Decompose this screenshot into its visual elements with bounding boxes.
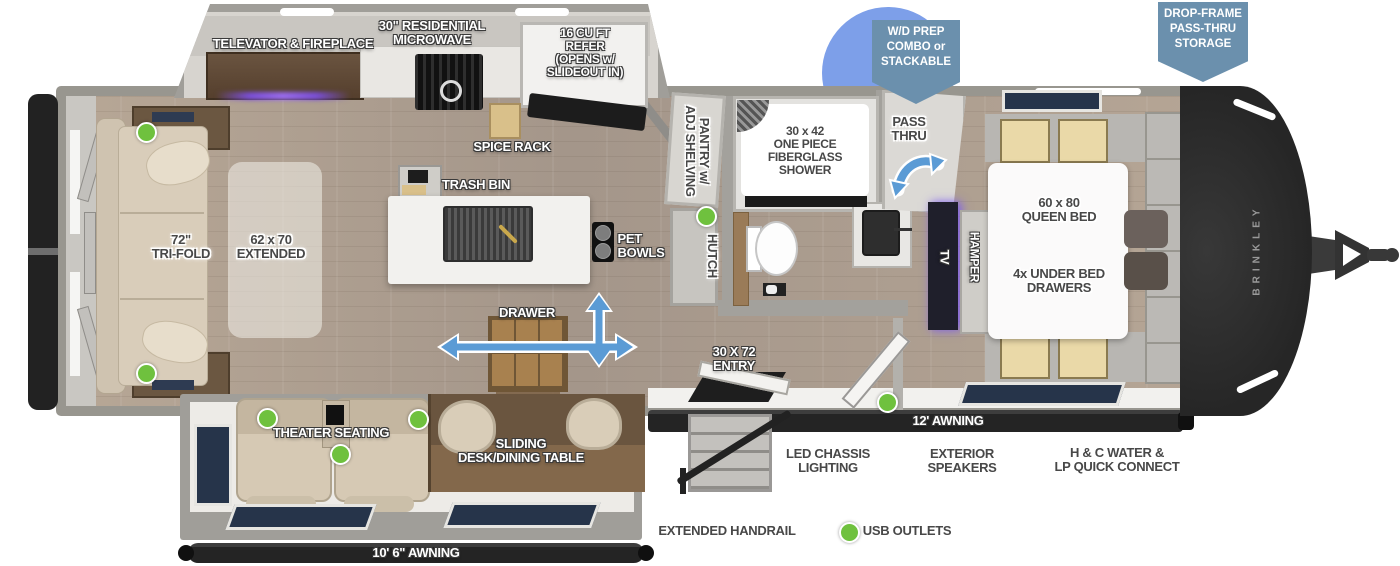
nightstand bbox=[1000, 337, 1050, 379]
usb-outlet-dot bbox=[257, 408, 278, 429]
usb-outlets-legend-icon bbox=[839, 522, 860, 543]
label-residential-microwave: 30" RESIDENTIAL MICROWAVE bbox=[379, 19, 485, 47]
end-table-window bbox=[152, 112, 194, 122]
label-extended: 62 x 70 EXTENDED bbox=[237, 233, 305, 261]
pet-bowls-unit bbox=[592, 222, 614, 262]
console-cup-tray bbox=[326, 405, 344, 425]
nightstand bbox=[1000, 119, 1050, 163]
usb-outlet-dot bbox=[696, 206, 717, 227]
label-pantry: PANTRY w/ ADJ SHELVING bbox=[683, 105, 711, 197]
label-sliding-desk: SLIDING DESK/DINING TABLE bbox=[458, 437, 584, 465]
label-tri-fold: 72" TRI-FOLD bbox=[152, 233, 210, 261]
usb-outlet-dot bbox=[408, 409, 429, 430]
toilet-paper-holder bbox=[763, 283, 786, 296]
vanity-faucet bbox=[894, 228, 912, 231]
bedroom-bottom-window bbox=[958, 382, 1126, 406]
label-pet-bowls: PET BOWLS bbox=[618, 232, 665, 260]
bed-pillow bbox=[1124, 252, 1168, 290]
bed-pillow bbox=[1124, 210, 1168, 248]
queen-bed bbox=[988, 163, 1128, 339]
label-hamper: HAMPER bbox=[968, 232, 981, 282]
rear-window bbox=[70, 272, 80, 376]
end-table-window bbox=[152, 380, 194, 390]
label-spice-rack: SPICE RACK bbox=[473, 140, 550, 154]
trash-bin-drawer bbox=[402, 185, 426, 195]
front-cap bbox=[1180, 86, 1312, 416]
bedroom-top-window bbox=[1002, 90, 1102, 112]
trash-bin-unit bbox=[398, 165, 442, 200]
feature-usb-outlets: USB OUTLETS bbox=[863, 524, 951, 538]
callout-drop-frame-storage: DROP-FRAME PASS-THRU STORAGE bbox=[1158, 2, 1248, 82]
label-queen-bed: 60 x 80 QUEEN BED bbox=[1022, 196, 1097, 224]
usb-outlet-dot bbox=[136, 363, 157, 384]
slideout-window bbox=[443, 502, 600, 528]
slideout-window bbox=[225, 504, 376, 530]
feature-extended-handrail: EXTENDED HANDRAIL bbox=[658, 524, 795, 538]
floorplan-diagram: BRINKLEY TELEVATOR & FIREPLACE 30" RESID… bbox=[0, 0, 1400, 566]
pass-thru-arrow-icon bbox=[888, 146, 948, 202]
slideout-end-window bbox=[194, 424, 232, 506]
label-drawer: DRAWER bbox=[499, 306, 555, 320]
nightstand bbox=[1058, 337, 1108, 379]
toilet-paper-roll bbox=[766, 285, 777, 294]
rear-window bbox=[70, 130, 80, 234]
trash-bin-lid bbox=[408, 170, 428, 183]
label-entry: 30 X 72 ENTRY bbox=[713, 345, 756, 373]
label-trash-bin: TRASH BIN bbox=[442, 178, 510, 192]
spice-rack-cabinet bbox=[489, 103, 521, 139]
rear-awning-roller bbox=[178, 545, 194, 561]
feature-exterior-speakers: EXTERIOR SPEAKERS bbox=[927, 447, 996, 475]
nightstand bbox=[1058, 119, 1108, 163]
shower-threshold bbox=[745, 196, 867, 207]
label-televator-fireplace: TELEVATOR & FIREPLACE bbox=[213, 37, 374, 51]
handrail-post bbox=[680, 468, 686, 494]
island-sink bbox=[443, 206, 533, 262]
fireplace-glow bbox=[216, 92, 350, 100]
rear-bumper-divider bbox=[28, 248, 58, 255]
sofa-cushion-seam bbox=[120, 298, 204, 300]
table-slide-arrows-icon bbox=[435, 288, 640, 372]
slide-clearance-light bbox=[280, 8, 334, 16]
pet-bowl bbox=[595, 243, 611, 259]
label-shower: 30 x 42 ONE PIECE FIBERGLASS SHOWER bbox=[768, 125, 842, 177]
theater-seat bbox=[236, 398, 332, 502]
label-hutch: HUTCH bbox=[705, 234, 719, 278]
label-refer: 16 CU FT REFER (OPENS w/ SLIDEOUT IN) bbox=[547, 27, 623, 79]
sofa-cushion-seam bbox=[120, 212, 204, 214]
label-tv: TV bbox=[938, 250, 951, 265]
feature-led-chassis-lighting: LED CHASSIS LIGHTING bbox=[786, 447, 870, 475]
sofa-trim bbox=[84, 212, 96, 294]
tv-wall bbox=[928, 202, 958, 330]
feature-hc-water-lp: H & C WATER & LP QUICK CONNECT bbox=[1055, 446, 1180, 474]
label-main-awning: 12' AWNING bbox=[912, 414, 983, 428]
toilet-bowl bbox=[755, 221, 798, 276]
brand-name: BRINKLEY bbox=[1253, 204, 1264, 295]
usb-outlet-dot bbox=[136, 122, 157, 143]
label-rear-awning: 10' 6" AWNING bbox=[372, 546, 459, 560]
pet-bowl bbox=[595, 225, 611, 241]
vanity-sink bbox=[862, 210, 900, 256]
label-under-bed-drawers: 4x UNDER BED DRAWERS bbox=[1013, 267, 1105, 295]
label-theater-seating: THEATER SEATING bbox=[273, 426, 389, 440]
slide-clearance-light bbox=[515, 8, 569, 16]
usb-outlet-dot bbox=[330, 444, 351, 465]
range-burner bbox=[440, 80, 462, 102]
label-pass-thru: PASS THRU bbox=[892, 115, 927, 143]
usb-outlet-dot bbox=[877, 392, 898, 413]
rear-awning-roller bbox=[638, 545, 654, 561]
